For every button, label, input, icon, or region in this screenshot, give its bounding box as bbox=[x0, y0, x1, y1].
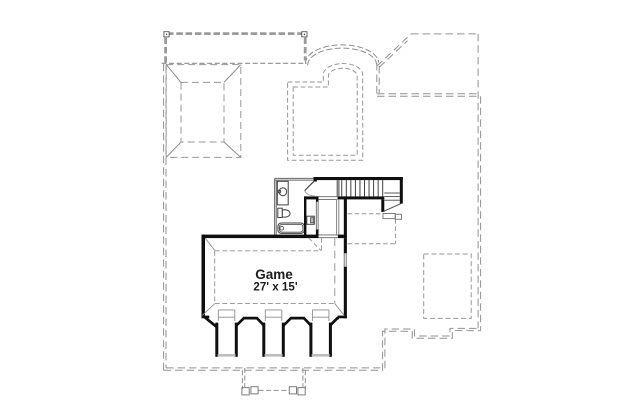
svg-text:27' x 15': 27' x 15' bbox=[253, 280, 297, 293]
